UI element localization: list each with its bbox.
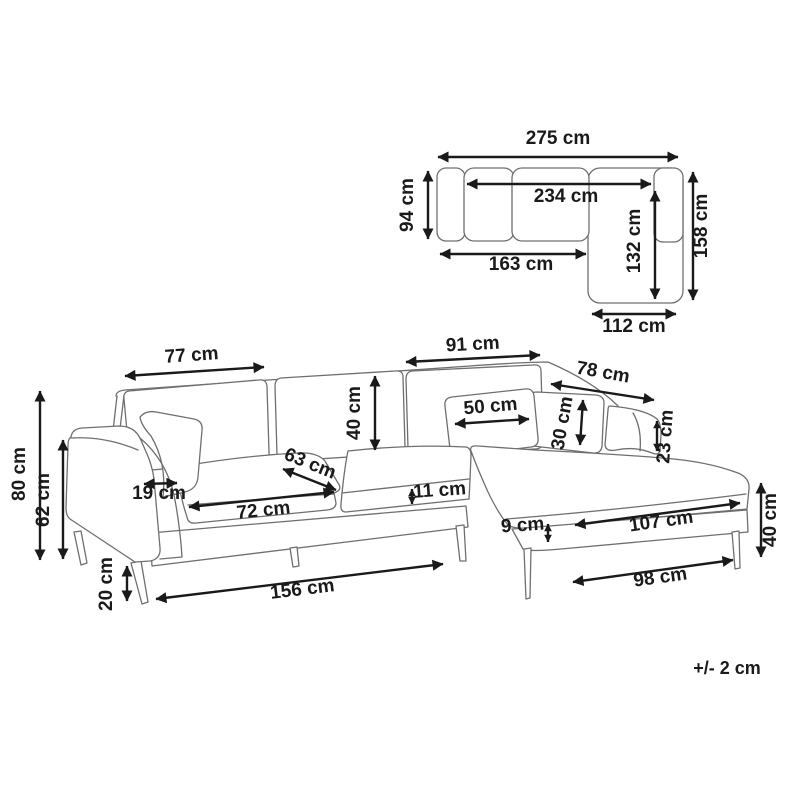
chaise-front-left-leg bbox=[524, 548, 531, 599]
rear-left-leg bbox=[74, 531, 87, 565]
dim-inner-width-label: 234 cm bbox=[534, 186, 598, 207]
dim-right-back-cushion-width: 91 cm bbox=[406, 333, 540, 362]
dim-chaise-width: 112 cm bbox=[592, 314, 676, 337]
dim-overall-depth-label: 158 cm bbox=[691, 194, 712, 258]
top-view-left-armrest bbox=[437, 168, 465, 241]
dim-chaise-height-label: 40 cm bbox=[760, 493, 781, 547]
dim-base-front-length: 156 cm bbox=[156, 564, 443, 604]
sofa-dimension-diagram: 275 cm 94 cm 234 cm 132 cm 158 cm 163 cm… bbox=[0, 0, 800, 800]
dim-body-depth: 94 cm bbox=[397, 171, 428, 239]
dim-chaise-width-label: 112 cm bbox=[602, 316, 665, 337]
dim-leg-height-label: 20 cm bbox=[96, 557, 117, 611]
dim-overall-height-label: 80 cm bbox=[9, 447, 30, 501]
dim-chaise-height: 40 cm bbox=[760, 483, 781, 557]
base-right-leg bbox=[456, 525, 466, 561]
dim-overall-depth: 158 cm bbox=[691, 172, 712, 300]
dim-left-back-cushion-width: 77 cm bbox=[125, 343, 264, 376]
middle-leg bbox=[290, 547, 299, 567]
dim-left-section-length-label: 163 cm bbox=[489, 254, 553, 275]
dim-right-armrest-height: 23 cm bbox=[653, 409, 678, 464]
dim-seat-cushion-thickness-label: 11 cm bbox=[413, 478, 467, 503]
dim-base-rail-height-label: 9 cm bbox=[500, 514, 545, 538]
top-view-right-armrest bbox=[654, 168, 683, 242]
dim-left-back-cushion-width-label: 77 cm bbox=[164, 343, 219, 368]
dim-overall-width-label: 275 cm bbox=[526, 128, 590, 149]
dim-chaise-base-length-label: 98 cm bbox=[632, 563, 688, 591]
dim-overall-width: 275 cm bbox=[438, 128, 678, 157]
dim-armrest-width: 19 cm bbox=[132, 483, 186, 504]
top-view-seat-1 bbox=[464, 168, 514, 241]
dim-right-back-cushion-width-label: 91 cm bbox=[445, 333, 500, 357]
front-left-leg bbox=[131, 561, 148, 604]
dim-back-cushion-height-label: 40 cm bbox=[344, 386, 365, 440]
dim-chaise-back-width-label: 78 cm bbox=[575, 358, 632, 388]
dim-armrest-height-label: 62 cm bbox=[33, 473, 54, 527]
dim-seat-cushion-width-label: 72 cm bbox=[236, 497, 292, 524]
dim-leg-height: 20 cm bbox=[96, 557, 127, 611]
dim-base-front-length-label: 156 cm bbox=[269, 575, 336, 604]
dim-armrest-width-label: 19 cm bbox=[132, 483, 186, 504]
chaise-front-right-leg bbox=[732, 531, 740, 569]
dim-chaise-inner-length-label: 132 cm bbox=[624, 209, 645, 273]
diagram-svg: 275 cm 94 cm 234 cm 132 cm 158 cm 163 cm… bbox=[0, 0, 800, 800]
dim-armrest-height: 62 cm bbox=[33, 440, 63, 559]
dim-body-depth-label: 94 cm bbox=[397, 178, 418, 232]
dim-chaise-base-length: 98 cm bbox=[573, 560, 733, 592]
tolerance-note: +/- 2 cm bbox=[693, 658, 761, 678]
dim-left-section-length: 163 cm bbox=[440, 254, 586, 275]
dim-right-armrest-height-label: 23 cm bbox=[653, 409, 678, 464]
